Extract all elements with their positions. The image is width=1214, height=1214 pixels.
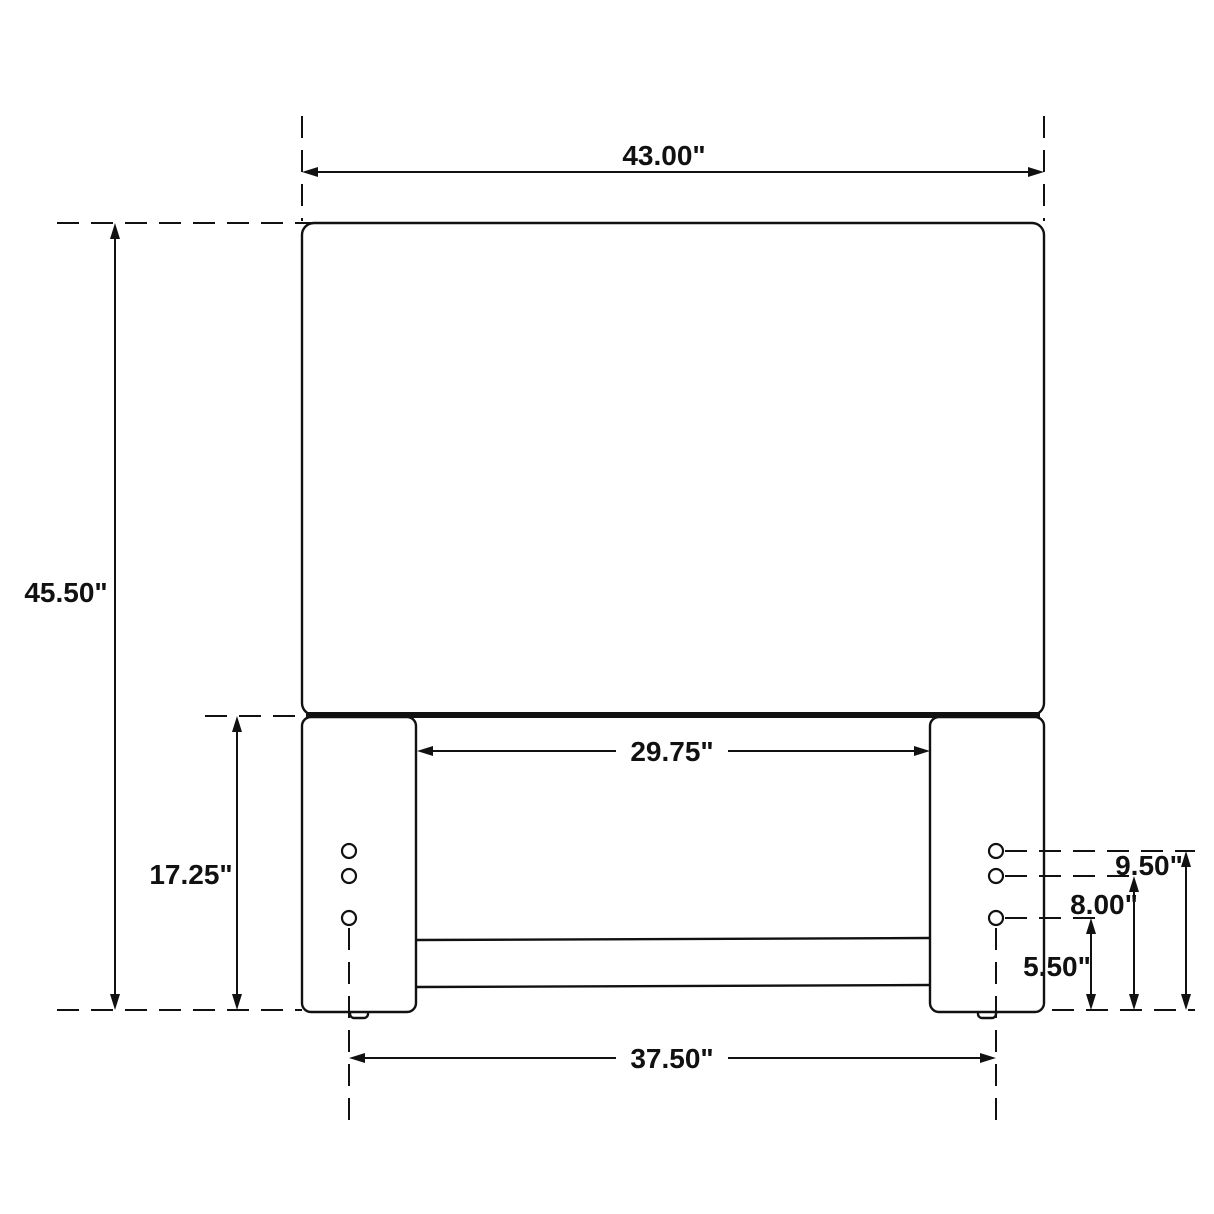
- arrowhead-top: [110, 223, 120, 239]
- arrowhead-left: [349, 1053, 365, 1063]
- arrowhead-top: [232, 716, 242, 732]
- left-leg: [302, 717, 416, 1012]
- dimension-hole-span: 37.50": [349, 928, 996, 1128]
- dim-label-leg-height: 17.25": [149, 859, 232, 890]
- arrowhead-bottom-hole-down: [1086, 994, 1096, 1010]
- headboard-dimension-diagram: 43.00" 45.50" 17.25" 29.75": [0, 0, 1214, 1214]
- arrowhead-top-hole-down: [1181, 994, 1191, 1010]
- arrowhead-left: [417, 746, 433, 756]
- arrowhead-right: [914, 746, 930, 756]
- right-leg-hole-middle: [989, 869, 1003, 883]
- dimension-overall-height: 45.50": [24, 223, 312, 1010]
- arrowhead-bottom-hole-up: [1086, 918, 1096, 934]
- left-leg-hole-top: [342, 844, 356, 858]
- arrowhead-bottom: [110, 994, 120, 1010]
- dim-label-overall-height: 45.50": [24, 577, 107, 608]
- arrowhead-right: [1028, 167, 1044, 177]
- left-leg-hole-bottom: [342, 911, 356, 925]
- left-leg-hole-middle: [342, 869, 356, 883]
- arrowhead-bottom: [232, 994, 242, 1010]
- dimension-drawing-canvas: 43.00" 45.50" 17.25" 29.75": [0, 0, 1214, 1214]
- dimension-inner-width: 29.75": [417, 736, 930, 767]
- right-leg-hole-bottom: [989, 911, 1003, 925]
- arrowhead-right: [980, 1053, 996, 1063]
- dim-label-bottom-hole-height: 5.50": [1023, 951, 1091, 982]
- dimension-leg-height: 17.25": [149, 716, 300, 1010]
- arrowhead-left: [302, 167, 318, 177]
- cross-rail-bottom-edge: [417, 985, 930, 987]
- dim-label-middle-hole-height: 8.00": [1070, 889, 1138, 920]
- dim-label-top-hole-height: 9.50": [1115, 850, 1183, 881]
- dim-label-overall-width: 43.00": [622, 140, 705, 171]
- cross-rail-top-edge: [417, 938, 930, 940]
- arrowhead-middle-hole-down: [1129, 994, 1139, 1010]
- headboard-outline: [302, 223, 1044, 1018]
- dim-label-inner-width: 29.75": [630, 736, 713, 767]
- headboard-panel: [302, 223, 1044, 715]
- right-leg-hole-top: [989, 844, 1003, 858]
- dimension-overall-width: 43.00": [302, 116, 1044, 221]
- dim-label-hole-span: 37.50": [630, 1043, 713, 1074]
